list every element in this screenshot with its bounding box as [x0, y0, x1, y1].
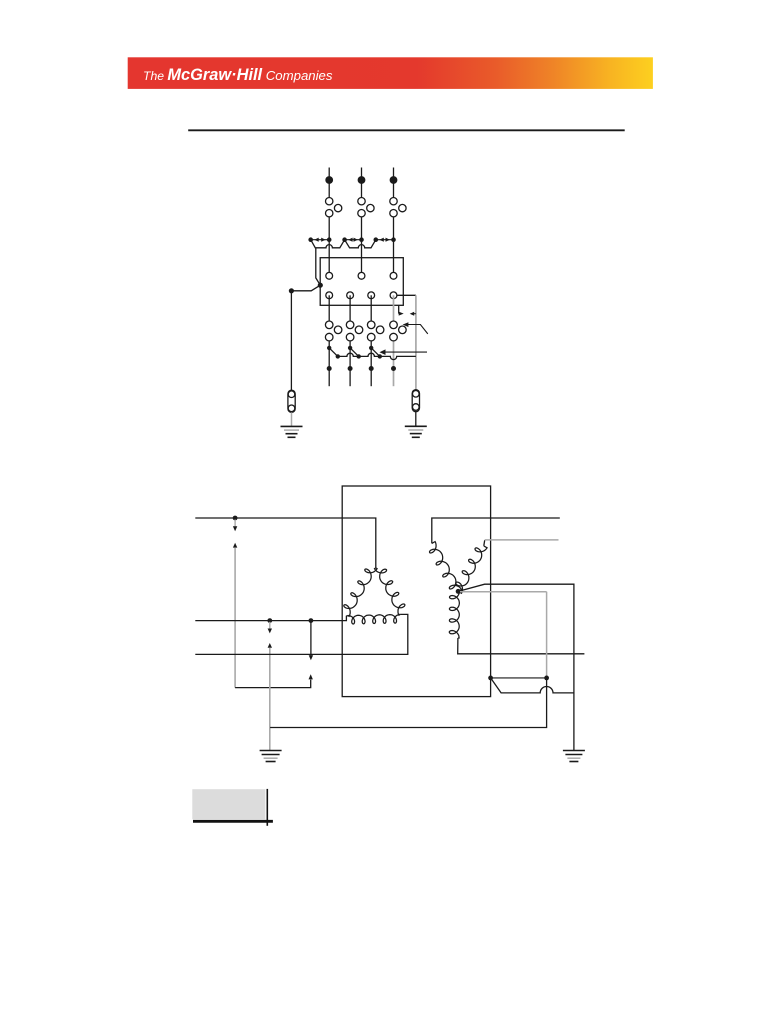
svg-text:The McGraw·Hill Companies: The McGraw·Hill Companies [143, 66, 333, 84]
